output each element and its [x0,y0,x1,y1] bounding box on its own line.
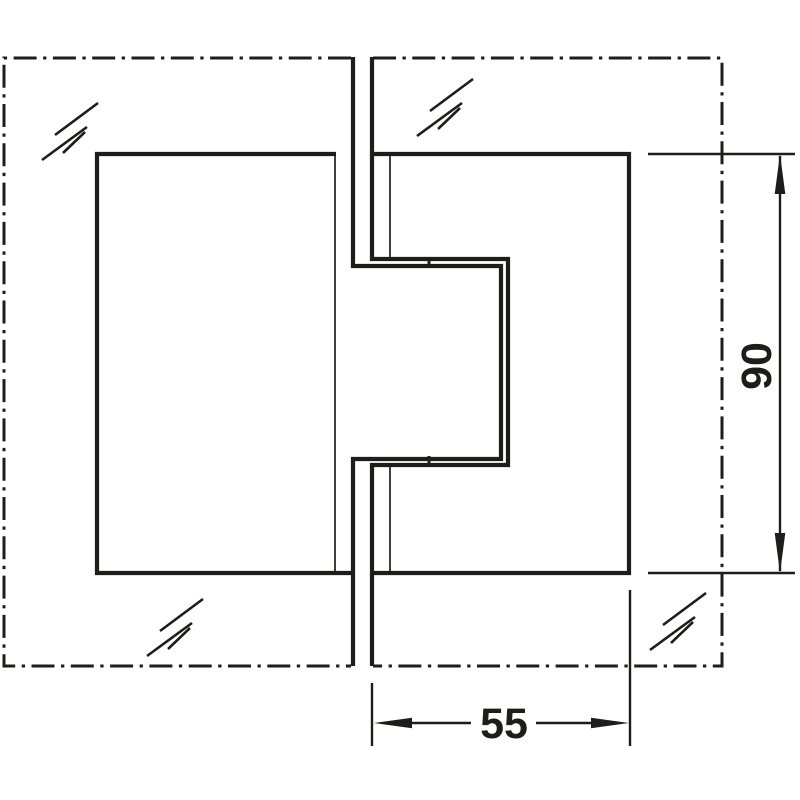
glass-hatch-icon [417,79,473,136]
glass-hatch-icon [650,593,706,650]
glass-hatch-icon [147,599,203,656]
arrow-up-icon [775,154,786,194]
technical-drawing-page: 90 55 [0,0,800,800]
width-dimension: 55 [372,590,630,748]
arrow-left-icon [374,718,412,729]
arrow-right-icon [591,718,629,729]
technical-drawing-canvas: 90 55 [0,0,800,800]
width-dimension-label: 55 [480,700,528,748]
left-clamp-plate-outline [97,154,351,573]
height-dimension-label: 90 [733,342,781,390]
arrow-down-icon [775,533,786,573]
glass-hatch-icon [42,103,98,160]
